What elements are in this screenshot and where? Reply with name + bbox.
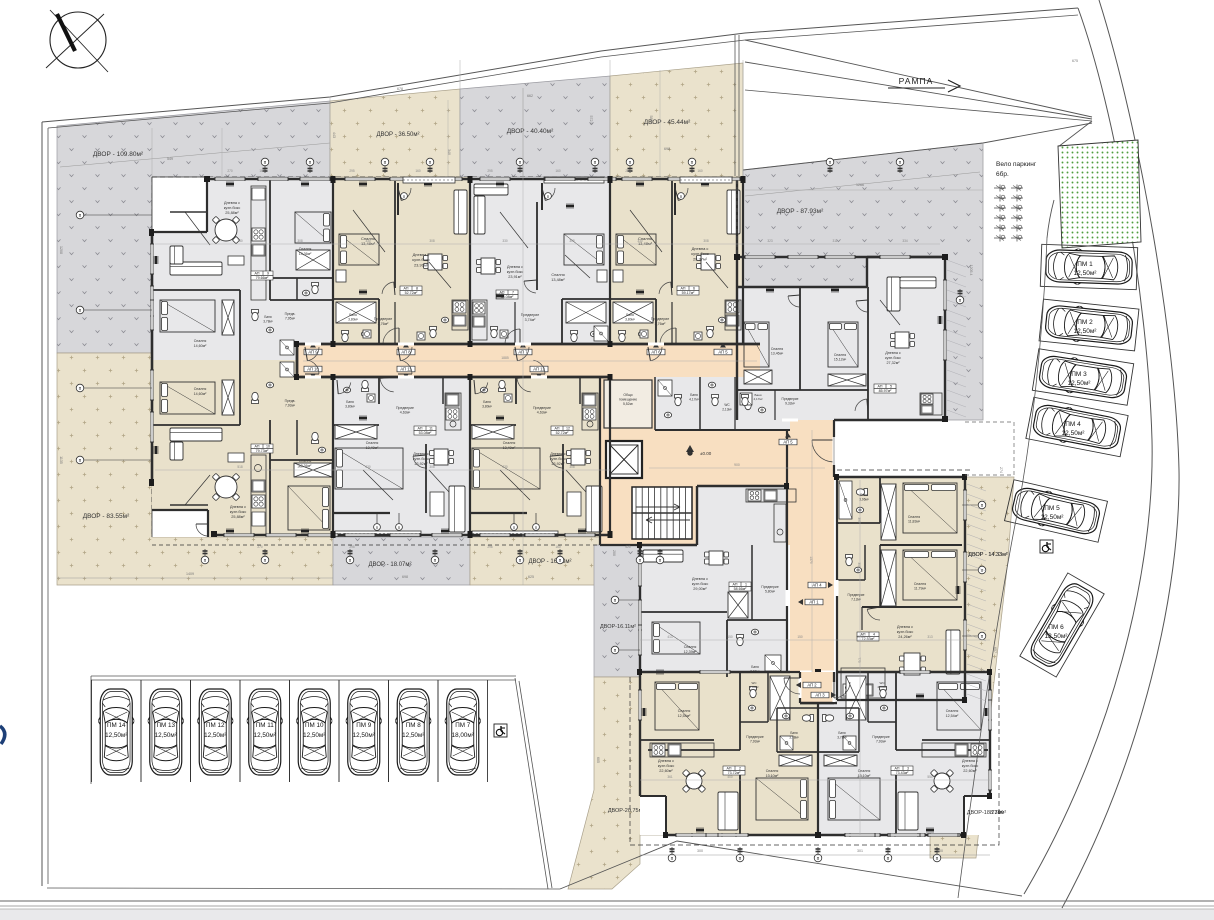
svg-text:160: 160 <box>697 169 703 173</box>
svg-text:Предверие: Предверие <box>782 397 799 401</box>
svg-text:549: 549 <box>167 157 173 161</box>
svg-text:12: 12 <box>566 427 570 431</box>
svg-text:ПМ 1: ПМ 1 <box>1077 261 1093 268</box>
svg-text:274: 274 <box>999 467 1003 473</box>
svg-text:п: п <box>614 598 617 604</box>
svg-text:п: п <box>79 308 82 314</box>
svg-text:ПМ 4: ПМ 4 <box>1065 421 1081 428</box>
svg-text:9,32м²: 9,32м² <box>785 402 796 406</box>
svg-text:Предв.: Предв. <box>285 399 296 403</box>
svg-text:6: 6 <box>693 287 695 291</box>
svg-text:п: п <box>264 160 267 166</box>
svg-text:АП: АП <box>255 272 260 276</box>
svg-text:58.66м²: 58.66м² <box>734 587 747 591</box>
svg-text:кухн.бокс: кухн.бокс <box>885 356 901 360</box>
svg-text:301: 301 <box>857 562 861 568</box>
svg-text:Баня: Баня <box>751 665 759 669</box>
svg-text:АП: АП <box>895 767 900 771</box>
svg-text:РАМПА: РАМПА <box>899 76 934 86</box>
svg-text:Дневна с: Дневна с <box>658 759 674 763</box>
svg-text:АП: АП <box>878 385 883 389</box>
svg-text:Баня: Баня <box>690 393 698 397</box>
svg-text:330: 330 <box>237 239 243 243</box>
svg-text:330: 330 <box>365 465 371 469</box>
svg-text:12,50м²: 12,50м² <box>155 732 177 739</box>
svg-text:п: п <box>264 558 267 564</box>
svg-text:Баня: Баня <box>626 313 634 317</box>
svg-text:9: 9 <box>267 272 269 276</box>
svg-text:АП 5: АП 5 <box>718 350 728 355</box>
svg-text:Спалня: Спалня <box>299 459 312 463</box>
svg-text:Спалня: Спалня <box>194 387 207 391</box>
svg-text:2,13м²: 2,13м² <box>722 407 731 411</box>
svg-text:Предверие: Предверие <box>396 406 414 410</box>
svg-text:кухн.бокс: кухн.бокс <box>224 206 241 210</box>
svg-text:53.08м²: 53.08м² <box>419 431 432 435</box>
svg-text:12,50м²: 12,50м² <box>1045 633 1069 640</box>
svg-text:7,93м²: 7,93м² <box>876 740 887 744</box>
svg-text:52.72м²: 52.72м² <box>556 431 569 435</box>
svg-text:АП: АП <box>418 427 423 431</box>
svg-text:Предверие: Предверие <box>872 735 890 739</box>
svg-text:1135: 1135 <box>59 456 63 464</box>
svg-text:300: 300 <box>697 849 703 853</box>
svg-text:Дневна с: Дневна с <box>885 351 901 355</box>
svg-text:п: п <box>384 160 387 166</box>
svg-text:Спалня: Спалня <box>914 582 926 586</box>
svg-text:АП: АП <box>255 445 260 449</box>
svg-text:23,91м²: 23,91м² <box>414 262 429 267</box>
svg-text:Дневна с: Дневна с <box>692 577 708 581</box>
svg-text:АП 2: АП 2 <box>807 683 817 688</box>
svg-text:ДВОР-18.73м²: ДВОР-18.73м² <box>967 810 1004 816</box>
svg-text:п: п <box>79 458 82 464</box>
svg-text:3,80м²: 3,80м² <box>482 405 493 409</box>
svg-text:ПМ 14: ПМ 14 <box>107 722 126 729</box>
svg-text:330: 330 <box>502 239 508 243</box>
svg-text:160: 160 <box>555 169 561 173</box>
svg-text:ПМ 12: ПМ 12 <box>206 722 225 729</box>
svg-text:7: 7 <box>512 291 514 295</box>
svg-text:12,50м²: 12,50м² <box>353 732 375 739</box>
svg-text:295: 295 <box>349 169 355 173</box>
svg-text:Дневна с: Дневна с <box>224 201 240 205</box>
svg-text:698: 698 <box>664 147 670 151</box>
svg-text:334: 334 <box>902 239 908 243</box>
svg-text:311: 311 <box>832 239 837 243</box>
svg-text:5,80м²: 5,80м² <box>765 590 776 594</box>
svg-text:п: п <box>981 634 984 640</box>
svg-text:ДВОР - 36.50м²: ДВОР - 36.50м² <box>376 132 419 138</box>
svg-text:150: 150 <box>797 635 803 639</box>
svg-text:Предверие: Предверие <box>521 313 539 317</box>
svg-text:ПМ 9: ПМ 9 <box>356 722 372 729</box>
svg-text:605: 605 <box>596 757 600 763</box>
svg-text:п: п <box>614 648 617 654</box>
svg-text:160: 160 <box>259 169 265 173</box>
svg-text:АП 7: АП 7 <box>518 350 528 355</box>
svg-text:3,76м²: 3,76м² <box>378 322 389 326</box>
svg-text:Предверие: Предверие <box>374 317 392 321</box>
svg-text:29,00м²: 29,00м² <box>693 587 707 591</box>
svg-text:13,49м²: 13,49м² <box>503 446 516 450</box>
svg-text:12,50м²: 12,50м² <box>254 732 276 739</box>
svg-text:Дневна с: Дневна с <box>230 505 246 509</box>
svg-text:Спалня: Спалня <box>858 769 871 773</box>
svg-text:675: 675 <box>1072 59 1078 63</box>
svg-text:п: п <box>204 558 207 564</box>
svg-text:1205.4: 1205.4 <box>969 265 973 276</box>
svg-text:12,50м²: 12,50м² <box>105 732 127 739</box>
svg-text:301: 301 <box>857 849 863 853</box>
svg-text:22,60м²: 22,60м² <box>659 769 673 773</box>
svg-text:52.72м²: 52.72м² <box>405 291 418 295</box>
svg-text:кухн.бокс: кухн.бокс <box>230 510 247 514</box>
svg-text:59.17м²: 59.17м² <box>682 291 695 295</box>
svg-text:Спалня: Спалня <box>946 709 959 713</box>
svg-text:3,78м²: 3,78м² <box>789 735 798 739</box>
svg-text:12,54м²: 12,54м² <box>946 714 959 718</box>
svg-text:Вело паркинг: Вело паркинг <box>996 161 1037 168</box>
svg-text:295: 295 <box>349 545 355 549</box>
svg-text:15,12м²: 15,12м² <box>834 358 847 362</box>
svg-text:330: 330 <box>365 239 371 243</box>
svg-text:150: 150 <box>727 635 733 639</box>
svg-text:п: п <box>79 386 82 392</box>
svg-text:308: 308 <box>429 465 435 469</box>
svg-text:АП: АП <box>555 427 560 431</box>
svg-text:79.73м²: 79.73м² <box>256 449 269 453</box>
svg-text:ДВОР - 87.93м²: ДВОР - 87.93м² <box>777 208 824 215</box>
svg-text:678: 678 <box>397 87 403 91</box>
svg-text:п: п <box>629 160 632 166</box>
svg-text:Предверие: Предверие <box>651 317 669 321</box>
svg-text:2: 2 <box>739 767 741 771</box>
svg-text:25,88м²: 25,88м² <box>231 515 245 519</box>
svg-text:413: 413 <box>667 635 673 639</box>
svg-text:23,92м²: 23,92м² <box>552 462 566 466</box>
svg-text:ПМ 6: ПМ 6 <box>1048 624 1064 631</box>
svg-text:11,83м²: 11,83м² <box>908 520 921 524</box>
svg-text:900: 900 <box>734 463 740 467</box>
svg-text:361: 361 <box>667 775 673 779</box>
svg-text:Спалня: Спалня <box>503 441 516 445</box>
svg-text:3: 3 <box>907 767 909 771</box>
svg-text:295: 295 <box>625 169 631 173</box>
svg-text:ДВОР-20.75м²: ДВОР-20.75м² <box>608 808 645 814</box>
svg-text:7,93м²: 7,93м² <box>285 404 296 408</box>
svg-text:308: 308 <box>429 239 435 243</box>
svg-text:АП 4: АП 4 <box>812 583 822 588</box>
svg-text:400: 400 <box>937 849 943 853</box>
svg-text:Баня: Баня <box>346 400 354 404</box>
svg-text:29,37м²: 29,37м² <box>693 256 708 261</box>
svg-text:323: 323 <box>767 239 773 243</box>
svg-text:ПМ 8: ПМ 8 <box>406 722 422 729</box>
svg-text:13,46м²: 13,46м² <box>771 352 784 356</box>
svg-text:п: п <box>434 558 437 564</box>
svg-text:4,63м²: 4,63м² <box>537 411 548 415</box>
svg-text:кухн.бокс: кухн.бокс <box>413 457 429 461</box>
svg-text:АП: АП <box>404 287 409 291</box>
svg-text:330: 330 <box>297 465 303 469</box>
svg-text:п: п <box>429 160 432 166</box>
svg-text:Спалня: Спалня <box>834 353 846 357</box>
svg-text:23,92м²: 23,92м² <box>415 462 429 466</box>
svg-text:ПМ 11: ПМ 11 <box>256 722 275 729</box>
svg-text:308: 308 <box>703 239 709 243</box>
svg-text:13,36м²: 13,36м² <box>299 252 312 256</box>
svg-text:1266: 1266 <box>856 183 864 187</box>
svg-text:308: 308 <box>297 239 303 243</box>
svg-text:4: 4 <box>873 633 875 637</box>
svg-text:1208: 1208 <box>59 246 63 254</box>
svg-text:АП 8: АП 8 <box>401 350 411 355</box>
svg-text:3,78м²: 3,78м² <box>837 735 846 739</box>
svg-text:Предв.: Предв. <box>285 312 296 316</box>
svg-text:85.97м²: 85.97м² <box>879 389 892 393</box>
svg-text:625: 625 <box>528 575 534 579</box>
svg-text:12,50м²: 12,50м² <box>1062 430 1086 437</box>
svg-text:12,54м²: 12,54м² <box>678 714 691 718</box>
svg-text:2,90м²: 2,90м² <box>750 685 759 689</box>
svg-text:Дневна с: Дневна с <box>550 452 566 456</box>
svg-text:АП 6: АП 6 <box>651 350 661 355</box>
svg-text:340: 340 <box>447 149 451 155</box>
svg-text:ПМ 3: ПМ 3 <box>1071 371 1087 378</box>
svg-text:1885: 1885 <box>501 356 509 360</box>
svg-text:73.43м²: 73.43м² <box>896 771 909 775</box>
svg-text:ДВОР - 14.33м²: ДВОР - 14.33м² <box>968 552 1008 558</box>
svg-text:п: п <box>887 856 890 862</box>
svg-text:п: п <box>936 856 939 862</box>
svg-text:18,00м²: 18,00м² <box>452 732 474 739</box>
svg-text:518: 518 <box>237 465 243 469</box>
svg-text:160: 160 <box>415 169 421 173</box>
svg-text:3,74м²: 3,74м² <box>525 318 536 322</box>
svg-text:3,80м²: 3,80м² <box>348 318 359 322</box>
svg-text:ДВОР - 18.07м²: ДВОР - 18.07м² <box>368 562 411 568</box>
svg-text:п: п <box>594 160 597 166</box>
svg-text:12,50м²: 12,50м² <box>204 732 226 739</box>
svg-text:400: 400 <box>727 775 733 779</box>
svg-text:79.66м²: 79.66м² <box>256 276 269 280</box>
svg-text:14,60м²: 14,60м² <box>194 344 207 348</box>
svg-text:Предверие: Предверие <box>761 585 779 589</box>
svg-text:443: 443 <box>332 132 336 138</box>
svg-text:Спалня: Спалня <box>684 645 697 649</box>
svg-text:АП 5: АП 5 <box>783 440 793 445</box>
svg-text:п: п <box>817 856 820 862</box>
svg-text:3,96м²: 3,96м² <box>859 497 868 501</box>
svg-text:11,79м²: 11,79м² <box>914 587 927 591</box>
svg-text:13,48м²: 13,48м² <box>551 278 565 282</box>
svg-text:625: 625 <box>625 545 631 549</box>
svg-text:588.1: 588.1 <box>649 116 653 125</box>
svg-text:п: п <box>659 558 662 564</box>
svg-text:WC: WC <box>724 403 730 407</box>
svg-text:ДВОР - 109.80м²: ДВОР - 109.80м² <box>93 151 144 158</box>
svg-text:1409: 1409 <box>186 572 194 576</box>
svg-text:ДВОР-16.11м²: ДВОР-16.11м² <box>600 624 636 630</box>
svg-text:7,93м²: 7,93м² <box>750 740 761 744</box>
svg-text:775: 775 <box>857 657 861 663</box>
svg-text:12,50м²: 12,50м² <box>1074 270 1098 277</box>
svg-text:ПМ 2: ПМ 2 <box>1077 319 1093 326</box>
svg-text:72.53м²: 72.53м² <box>862 637 875 641</box>
svg-text:308: 308 <box>569 239 575 243</box>
svg-text:кухн.бокс: кухн.бокс <box>507 270 524 274</box>
svg-text:помещение: помещение <box>619 398 637 402</box>
svg-text:АП: АП <box>500 291 505 295</box>
svg-text:270: 270 <box>227 169 233 173</box>
svg-text:4,17м²: 4,17м² <box>689 398 700 402</box>
svg-text:330: 330 <box>502 465 508 469</box>
svg-text:кухн.бокс: кухн.бокс <box>692 582 709 586</box>
svg-text:ДВОР - 16.63м²: ДВОР - 16.63м² <box>528 559 571 565</box>
svg-text:12,50м²: 12,50м² <box>1074 328 1098 335</box>
svg-text:кухн.бокс: кухн.бокс <box>897 630 914 634</box>
svg-text:296: 296 <box>487 545 493 549</box>
svg-text:АП: АП <box>733 583 738 587</box>
svg-text:Спалня: Спалня <box>766 769 779 773</box>
svg-text:Баня: Баня <box>483 400 491 404</box>
svg-text:п: п <box>899 160 902 166</box>
svg-text:кухн.бокс: кухн.бокс <box>550 457 566 461</box>
svg-text:ПМ 13: ПМ 13 <box>156 722 175 729</box>
svg-text:Дневна с: Дневна с <box>897 625 913 629</box>
svg-text:Спалня: Спалня <box>194 339 207 343</box>
svg-text:АП 1: АП 1 <box>809 600 819 605</box>
svg-text:330: 330 <box>637 239 643 243</box>
svg-text:3,76м²: 3,76м² <box>655 322 666 326</box>
svg-text:п: п <box>981 568 984 574</box>
svg-text:270: 270 <box>257 545 263 549</box>
svg-text:210: 210 <box>767 775 773 779</box>
svg-text:23,91м²: 23,91м² <box>508 275 522 279</box>
svg-text:1: 1 <box>745 583 747 587</box>
svg-text:п: п <box>739 856 742 862</box>
svg-text:ПМ 7: ПМ 7 <box>455 722 471 729</box>
svg-text:11: 11 <box>429 427 433 431</box>
svg-text:Баня: Баня <box>790 731 798 735</box>
svg-text:572.5: 572.5 <box>589 116 593 125</box>
svg-text:Спалня: Спалня <box>551 273 564 277</box>
svg-text:Баня: Баня <box>349 313 357 317</box>
svg-text:3,80м²: 3,80м² <box>625 318 636 322</box>
svg-text:кухн.бокс: кухн.бокс <box>658 764 675 768</box>
svg-text:24,26м²: 24,26м² <box>898 635 912 639</box>
svg-text:14,60м²: 14,60м² <box>194 392 207 396</box>
svg-text:12,39м²: 12,39м² <box>684 650 697 654</box>
svg-text:Предверие: Предверие <box>746 735 764 739</box>
svg-text:8: 8 <box>416 287 418 291</box>
svg-text:Спалня: Спалня <box>908 515 920 519</box>
svg-text:п: п <box>79 213 82 219</box>
svg-text:ПМ 10: ПМ 10 <box>305 722 324 729</box>
svg-text:5: 5 <box>890 385 892 389</box>
svg-text:12,50м²: 12,50м² <box>402 732 424 739</box>
svg-text:п: п <box>519 160 522 166</box>
svg-text:5,52м²: 5,52м² <box>623 402 634 406</box>
svg-text:Спалня: Спалня <box>678 709 691 713</box>
svg-text:п: п <box>309 160 312 166</box>
svg-text:п: п <box>519 558 522 564</box>
svg-text:2,90м²: 2,90м² <box>878 685 887 689</box>
svg-text:п: п <box>671 856 674 862</box>
svg-text:Спалня: Спалня <box>366 441 379 445</box>
svg-text:Баня: Баня <box>838 731 846 735</box>
svg-text:п: п <box>639 558 642 564</box>
svg-text:п: п <box>981 503 984 509</box>
svg-text:6бр.: 6бр. <box>996 170 1009 178</box>
svg-text:п: п <box>829 160 832 166</box>
svg-text:698: 698 <box>402 575 408 579</box>
svg-text:ДВОР - 40.40м²: ДВОР - 40.40м² <box>507 128 554 135</box>
svg-text:АП 9: АП 9 <box>308 350 318 355</box>
svg-text:Баня: Баня <box>860 493 868 497</box>
svg-text:п: п <box>349 558 352 564</box>
svg-text:550: 550 <box>927 775 933 779</box>
svg-text:4,17м²: 4,17м² <box>754 397 763 401</box>
svg-text:12,50м²: 12,50м² <box>1068 380 1092 387</box>
svg-text:Спалня: Спалня <box>771 347 783 351</box>
svg-text:п: п <box>559 558 562 564</box>
svg-text:ДВОР - 83.55м²: ДВОР - 83.55м² <box>83 513 130 520</box>
svg-text:±0.00: ±0.00 <box>700 451 712 456</box>
svg-text:3,80м²: 3,80м² <box>345 405 356 409</box>
svg-text:Баня: Баня <box>264 315 272 319</box>
svg-text:160: 160 <box>555 545 561 549</box>
svg-text:п: п <box>691 160 694 166</box>
svg-text:25,88м²: 25,88м² <box>225 211 239 215</box>
svg-text:АП 3: АП 3 <box>815 693 825 698</box>
svg-text:308: 308 <box>569 465 575 469</box>
svg-text:12,50м²: 12,50м² <box>1041 514 1065 521</box>
svg-text:АП: АП <box>727 767 732 771</box>
svg-text:7,95м²: 7,95м² <box>285 317 296 321</box>
svg-text:ПМ 5: ПМ 5 <box>1044 505 1060 512</box>
svg-text:12,50м²: 12,50м² <box>303 732 325 739</box>
svg-text:Общо: Общо <box>623 393 632 397</box>
svg-text:200: 200 <box>612 550 616 556</box>
svg-text:1370: 1370 <box>809 556 813 564</box>
svg-text:Предверие: Предверие <box>848 593 865 597</box>
svg-text:Дневна с: Дневна с <box>507 265 523 269</box>
svg-text:3,78м²: 3,78м² <box>263 319 272 323</box>
svg-text:295: 295 <box>487 169 493 173</box>
svg-text:662: 662 <box>527 94 533 98</box>
svg-text:4,63м²: 4,63м² <box>400 411 411 415</box>
svg-text:Предверие: Предверие <box>533 406 551 410</box>
svg-text:313: 313 <box>927 635 933 639</box>
svg-text:Спалня: Спалня <box>299 247 312 251</box>
svg-text:13,49м²: 13,49м² <box>366 446 379 450</box>
svg-text:27,32м²: 27,32м² <box>887 361 901 365</box>
svg-text:АП: АП <box>681 287 686 291</box>
svg-text:393: 393 <box>857 517 861 523</box>
svg-text:Дневна с: Дневна с <box>962 759 978 763</box>
svg-text:10: 10 <box>266 445 270 449</box>
svg-text:Дневна с: Дневна с <box>413 452 429 456</box>
svg-text:п: п <box>959 298 962 304</box>
